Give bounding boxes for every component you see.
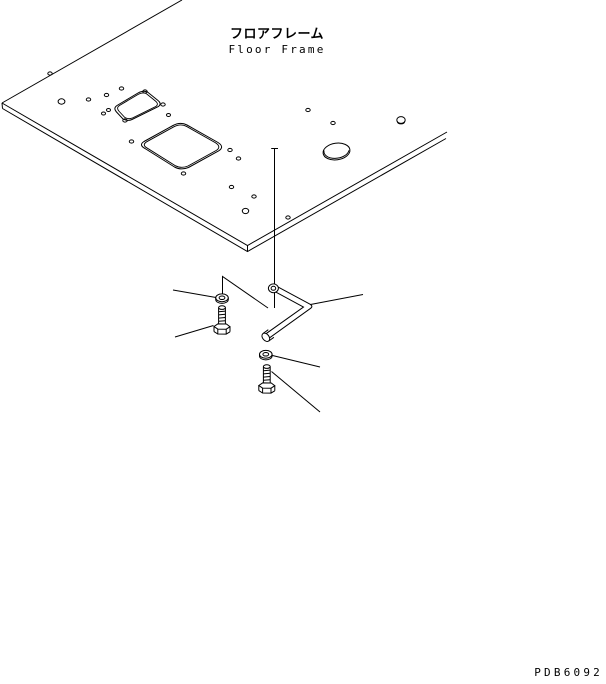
- hex-bolt-upper: [214, 306, 230, 334]
- washer-upper: [216, 294, 229, 304]
- drawing-code: PDB6092: [534, 666, 603, 679]
- hex-bolt-lower: [259, 365, 275, 393]
- tube-eyelet: [268, 284, 278, 293]
- panel-hole-medium: [397, 117, 405, 124]
- washer-assembly-line: [223, 277, 269, 309]
- panel-opening-large: [141, 123, 221, 169]
- panel-hole-large: [322, 141, 351, 161]
- bent-mounting-tube: [260, 284, 312, 343]
- exploded-view-drawing: [0, 0, 606, 684]
- washer-lower: [260, 350, 273, 360]
- panel-bolt-holes: [48, 72, 335, 219]
- panel-opening-small: [115, 91, 160, 120]
- floor-frame-panel: [2, 0, 447, 252]
- parts-diagram-page: フロアフレーム Floor Frame: [0, 0, 606, 684]
